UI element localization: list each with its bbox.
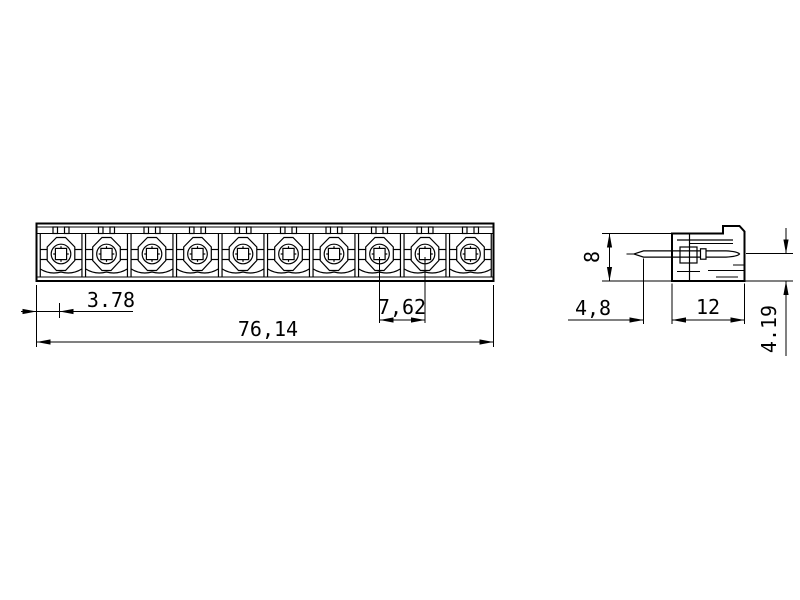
terminal-pole-cell (268, 227, 313, 277)
dimension-body-depth: 12 (672, 295, 745, 323)
terminal-pole-cell (222, 227, 267, 277)
pin-holder-block (680, 247, 697, 263)
side-body-outline (672, 226, 745, 281)
terminal-pole-cell (404, 227, 449, 277)
dim-label-pin-protrusion: 4,8 (575, 296, 611, 320)
terminal-pole-cell (131, 227, 176, 277)
solder-pin (627, 249, 740, 259)
dimension-pin-axis-to-bottom: 4.19 (757, 228, 789, 356)
terminal-pole-cell (177, 227, 222, 277)
dimension-body-height: 8 (580, 234, 612, 282)
dimension-pole-pitch: 7,62 (378, 295, 426, 323)
dim-label-body-depth: 12 (696, 295, 720, 319)
dim-label-body-height: 8 (580, 251, 604, 263)
side-view (627, 226, 745, 281)
dimension-edge-to-first-pole: 3.78 (21, 288, 135, 314)
dim-label-overall-length: 76,14 (238, 317, 298, 341)
terminal-pole-cell (86, 227, 131, 277)
terminal-pole-cell (40, 227, 85, 277)
terminal-pole-cells (40, 227, 491, 277)
dimension-pin-protrusion: 4,8 (568, 296, 644, 323)
dim-label-pin-axis-offset: 4.19 (757, 305, 781, 353)
technical-drawing: 3.78 7,62 76,14 8 (0, 0, 800, 600)
dim-label-pitch: 7,62 (378, 295, 426, 319)
dim-label-edge-offset: 3.78 (87, 288, 135, 312)
terminal-pole-cell (450, 227, 492, 277)
cad-drawing-sheet: 3.78 7,62 76,14 8 (0, 0, 800, 600)
terminal-pole-cell (313, 227, 358, 277)
terminal-pole-cell (359, 227, 404, 277)
